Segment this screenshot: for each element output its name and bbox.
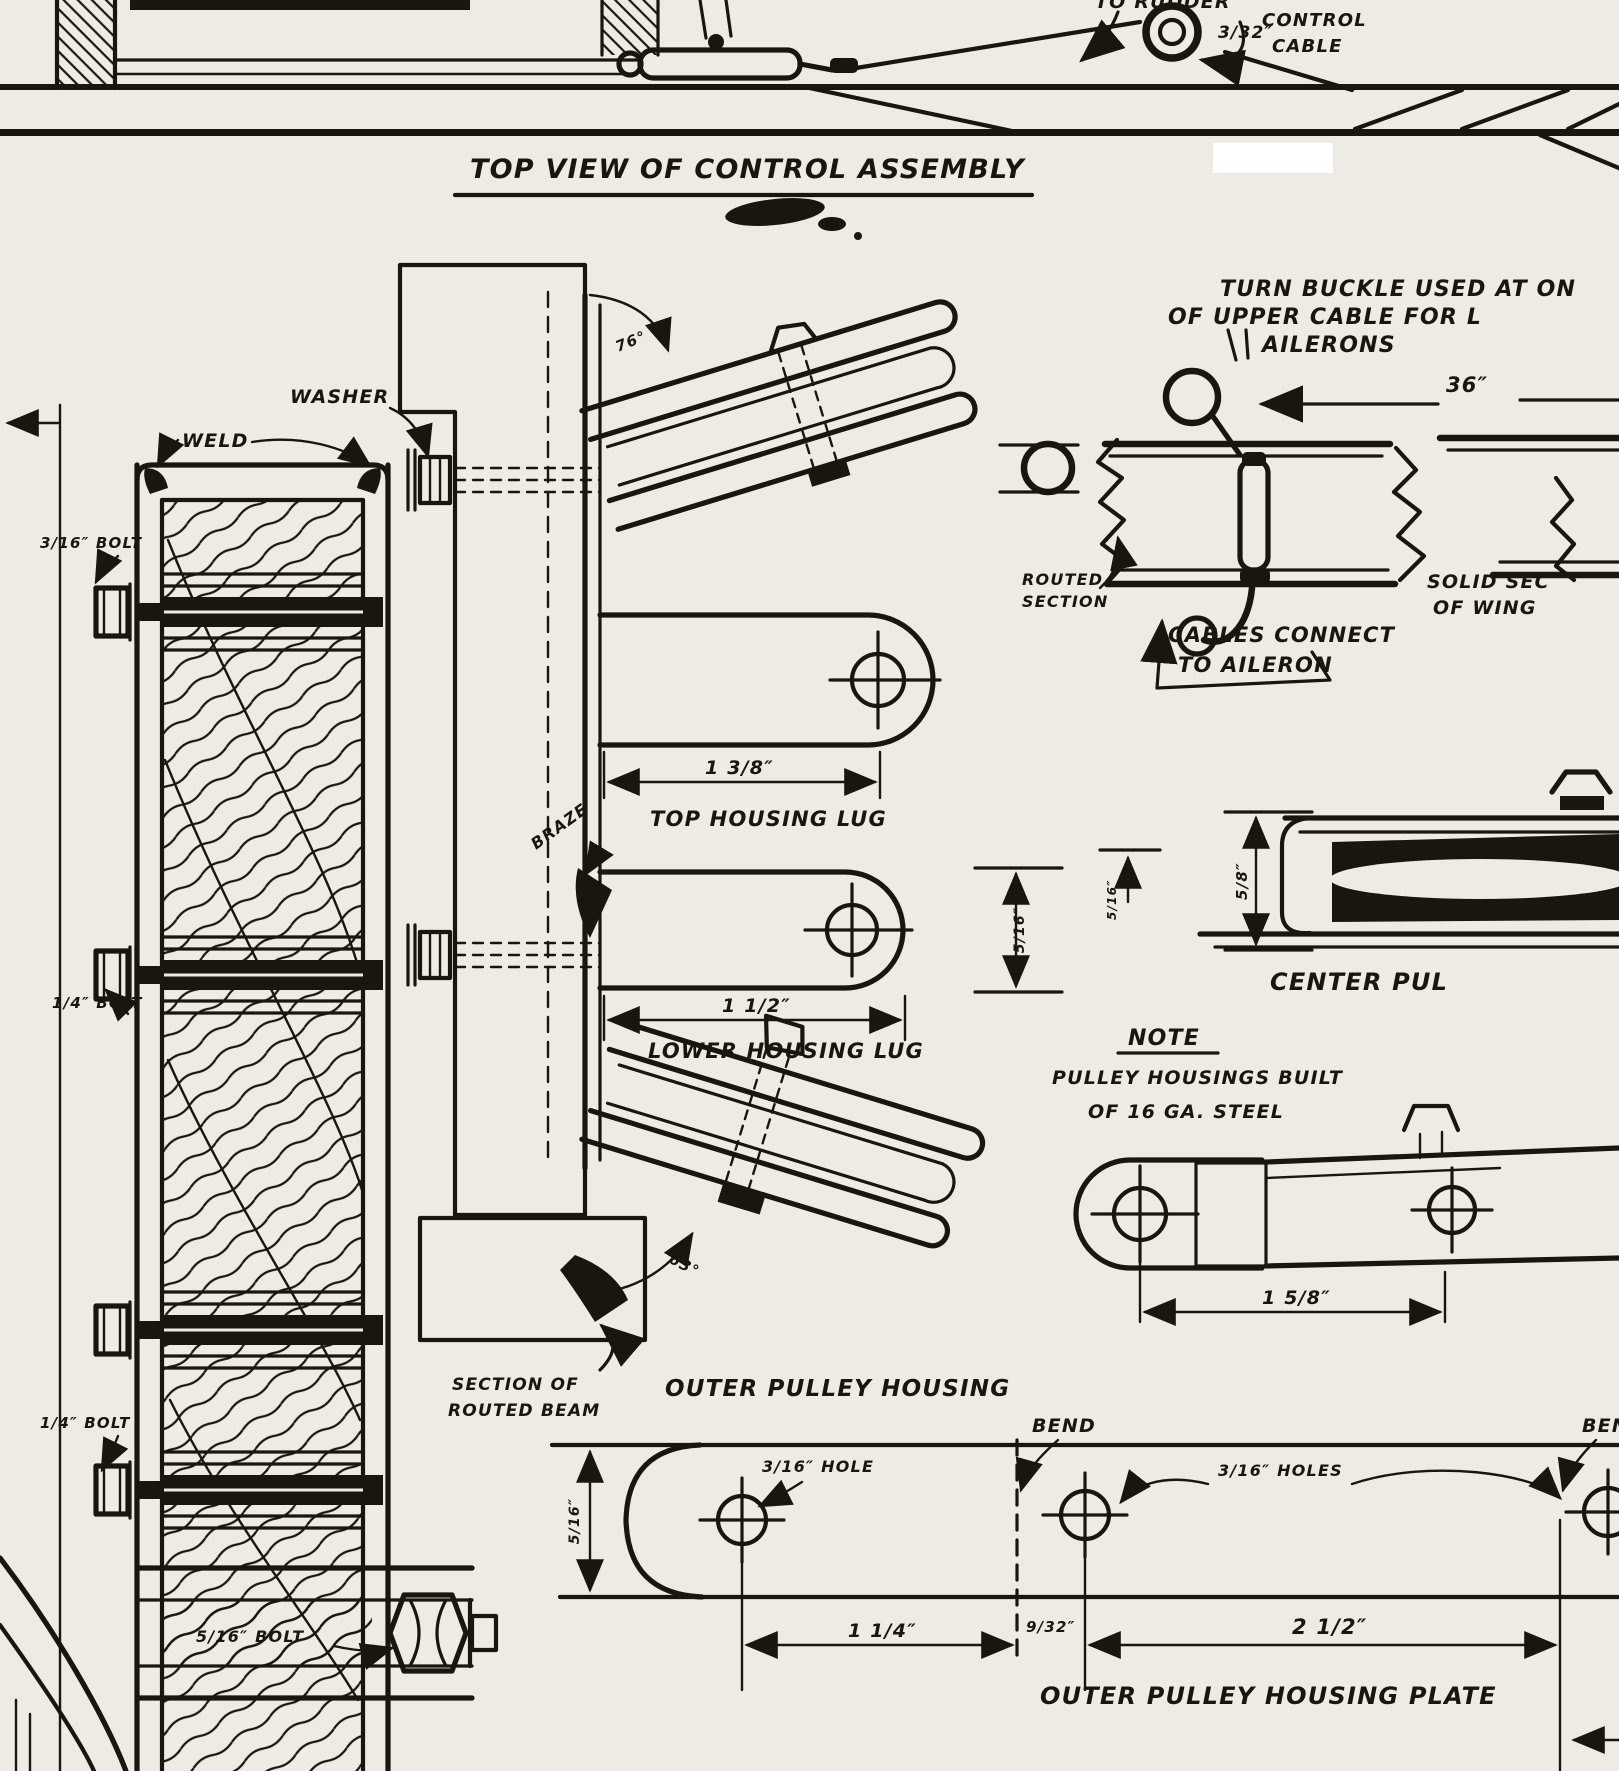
top-lug-dim: 1 3/8″ (705, 757, 774, 779)
corner-wedge (0, 1558, 126, 1771)
plate-height-dim: 5/16″ (567, 1498, 583, 1545)
plate-dim3: 2 1/2″ (1292, 1615, 1367, 1639)
page-title: TOP VIEW OF CONTROL ASSEMBLY (470, 154, 1026, 185)
whiteout-patch (1213, 143, 1333, 173)
angle-label-bottom: 63° (666, 1250, 703, 1281)
lower-lug-label: LOWER HOUSING LUG (648, 1039, 924, 1063)
plate-dim1: 1 1/4″ (848, 1620, 917, 1642)
control-cable-word2: CABLE (1272, 36, 1343, 57)
lower-lug-dim: 1 1/2″ (722, 995, 791, 1017)
cables-connect-label1: CABLES CONNECT (1168, 623, 1396, 647)
routed-beam-section (400, 265, 600, 1215)
ink-blot (724, 194, 826, 230)
hole-label: 3/16″ HOLE (762, 1457, 874, 1476)
note-line2: OF 16 GA. STEEL (1088, 1101, 1284, 1123)
section-of-label1: SECTION OF (452, 1375, 579, 1395)
weld-fillet-right (357, 468, 381, 494)
top-lug-label: TOP HOUSING LUG (650, 807, 887, 831)
bend-label-right: BEN (1582, 1415, 1619, 1437)
center-pulley-view: 5/8″ 5/16″ CENTER PUL (1100, 772, 1619, 996)
turnbuckle-note1: TURN BUCKLE USED AT ON (1220, 277, 1576, 302)
routed-section-label2: SECTION (1022, 592, 1108, 611)
holes-label: 3/16″ HOLES (1218, 1461, 1343, 1480)
section-of-label2: ROUTED BEAM (448, 1401, 600, 1421)
top-view-strip: TO RUDDER 3/32″ CONTROL CABLE (0, 0, 1619, 168)
washer-label: WASHER (290, 386, 389, 408)
housing-plate-development: BEND BEN 3/16″ HOLE 3/16″ HOLES 5/16″ 1 … (552, 1415, 1619, 1770)
cable-eye-ring (1146, 6, 1198, 58)
turnbuckle-note2: OF UPPER CABLE FOR L (1168, 305, 1482, 330)
outer-pulley-housing-label: OUTER PULLEY HOUSING (665, 1376, 1010, 1402)
cables-connect-label2: TO AILERON (1178, 653, 1333, 677)
note-block: NOTE PULLEY HOUSINGS BUILT OF 16 GA. STE… (1052, 1026, 1344, 1123)
dim-36: 36″ (1446, 373, 1488, 397)
solid-section-label1: SOLID SEC (1427, 571, 1550, 593)
bolt-label-bottom: 5/16″ BOLT (196, 1627, 304, 1646)
note-line1: PULLEY HOUSINGS BUILT (1052, 1067, 1344, 1089)
control-cable-word1: CONTROL (1262, 10, 1367, 31)
washer-bolt (408, 925, 600, 985)
note-head: NOTE (1128, 1026, 1200, 1051)
outer-housing-dim: 1 5/8″ (1262, 1287, 1331, 1309)
plate-dim2: 9/32″ (1026, 1618, 1076, 1636)
angle-label-top: 76° (613, 327, 649, 356)
cables-connect-flag: CABLES CONNECT TO AILERON (1157, 622, 1396, 688)
braze-label: BRAZE (527, 799, 591, 853)
center-pulley-label: CENTER PUL (1270, 968, 1448, 996)
aileron-rigging: TURN BUCKLE USED AT ON OF UPPER CABLE FO… (1000, 277, 1619, 688)
solid-section-label2: OF WING (1433, 597, 1537, 619)
blueprint-drawing: TO RUDDER 3/32″ CONTROL CABLE TOP VIEW O… (0, 0, 1619, 1771)
weld-label: WELD (182, 430, 249, 452)
braze-fillet (576, 868, 612, 938)
plate-hole (1566, 1470, 1619, 1554)
turnbuckle-note3: AILERONS (1260, 333, 1396, 358)
outer-housing-piece: 1 5/8″ (1076, 1106, 1619, 1322)
bolt-label-top: 3/16″ BOLT (40, 534, 143, 552)
bolt-label-mid: 1/4″ BOLT (52, 994, 143, 1012)
plate-title: OUTER PULLEY HOUSING PLATE (1040, 1682, 1497, 1710)
center-pulley-dim-side: 5/8″ (1233, 862, 1251, 900)
bend-label: BEND (1032, 1415, 1096, 1437)
upper-pulley-channel (575, 277, 991, 544)
washer-bolt (408, 450, 600, 510)
to-rudder-label: TO RUDDER (1095, 0, 1231, 13)
weld-fillet-left (144, 468, 168, 494)
blueprint-canvas: TO RUDDER 3/32″ CONTROL CABLE TOP VIEW O… (0, 0, 1619, 1771)
title-block: TOP VIEW OF CONTROL ASSEMBLY (455, 154, 1032, 240)
lug-height-dim: 5/16″ (1012, 907, 1028, 954)
routed-section-label1: ROUTED (1022, 570, 1103, 589)
center-pulley-dim-left: 5/16″ (1105, 879, 1119, 920)
routed-beam-cut-piece: SECTION OF ROUTED BEAM (420, 1218, 645, 1421)
left-dimension-line (8, 405, 60, 1771)
bolt-label-lower: 1/4″ BOLT (40, 1414, 131, 1432)
frame-front-view (96, 465, 496, 1771)
top-housing-lug: 1 3/8″ TOP HOUSING LUG (600, 615, 940, 831)
